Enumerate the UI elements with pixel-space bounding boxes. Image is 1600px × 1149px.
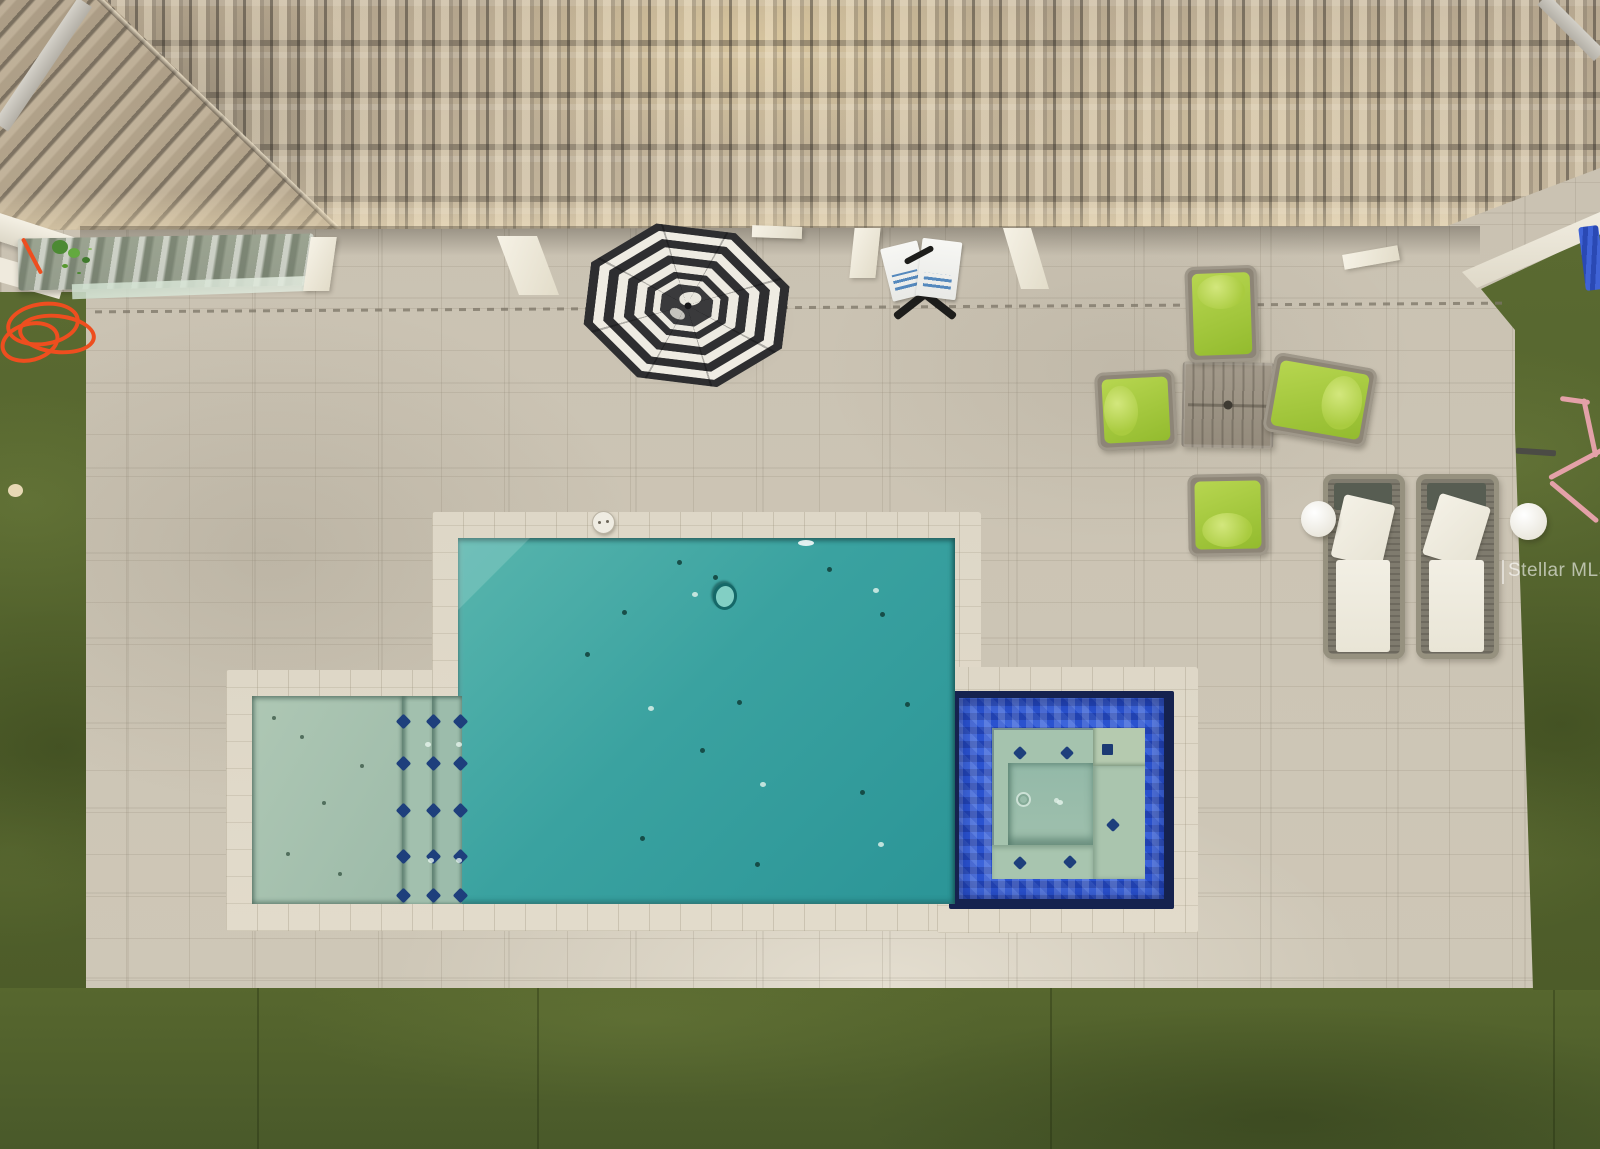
- striped-patio-umbrella: [577, 221, 794, 399]
- waterline-reflection: [798, 540, 814, 546]
- artificial-turf-left: [0, 292, 86, 992]
- turf-seam: [1050, 988, 1052, 1149]
- ledge-specks: [300, 735, 304, 739]
- light-dots: [425, 742, 431, 747]
- lounge-seat-cushion: [1336, 560, 1390, 652]
- orange-garden-hose-coil: [0, 240, 130, 370]
- stellar-mls-watermark: Stellar MLS: [1508, 560, 1600, 582]
- hose-fitting: [8, 484, 23, 497]
- dark-specks: [585, 652, 590, 657]
- lounge-seat-cushion: [1429, 560, 1484, 652]
- dark-specks: [880, 612, 885, 617]
- dark-specks: [860, 790, 865, 795]
- umbrella-seams: [578, 216, 795, 394]
- ledge-specks: [360, 764, 364, 768]
- lanai-beam: [752, 225, 802, 239]
- chaise-lounge: [1416, 474, 1499, 659]
- spa-squares: [1102, 744, 1113, 755]
- tanning-ledge: [252, 696, 402, 904]
- dark-specks: [905, 702, 910, 707]
- turf-seam: [537, 988, 539, 1149]
- folding-table-with-magazines: [885, 238, 965, 310]
- dining-chair-north: [1184, 265, 1259, 363]
- spa-entry-step: [1093, 728, 1145, 766]
- light-dots: [456, 858, 462, 863]
- dark-specks: [737, 700, 742, 705]
- artificial-turf-bottom: [0, 988, 1600, 1149]
- roof-valley-gutter-right: [1537, 0, 1600, 61]
- light-dots: [428, 858, 434, 863]
- lanai-post: [849, 228, 880, 278]
- light-dots: [760, 782, 766, 787]
- watermark-divider: [1502, 560, 1504, 584]
- dining-chair-west: [1094, 369, 1178, 451]
- spa-bench: [992, 845, 1093, 879]
- swimming-pool: [458, 538, 955, 904]
- dark-specks: [827, 567, 832, 572]
- ledge-specks: [322, 801, 326, 805]
- dark-specks: [713, 575, 718, 580]
- light-dots: [692, 592, 698, 597]
- ledge-specks: [338, 872, 342, 876]
- light-dots: [1057, 800, 1063, 805]
- dark-specks: [755, 862, 760, 867]
- light-dots: [456, 742, 462, 747]
- chaise-lounge: [1323, 474, 1405, 659]
- dark-specks: [700, 748, 705, 753]
- spa-bench: [1093, 766, 1145, 879]
- aerial-backyard-photo: Stellar MLS: [0, 0, 1600, 1149]
- ledge-specks: [286, 852, 290, 856]
- light-dots: [878, 842, 884, 847]
- magazine: [916, 238, 963, 300]
- dining-chair-south: [1187, 473, 1268, 556]
- patio-dining-table: [1181, 361, 1274, 449]
- round-side-table: [1301, 501, 1336, 537]
- ledge-specks: [272, 716, 276, 720]
- pool-step: [402, 696, 432, 904]
- dark-specks: [677, 560, 682, 565]
- round-side-table: [1510, 503, 1547, 540]
- turf-seam: [257, 988, 259, 1149]
- roof-eave-highlight: [0, 192, 1600, 230]
- spa-drain: [1016, 792, 1031, 807]
- light-dots: [648, 706, 654, 711]
- hose-tail: [21, 237, 43, 274]
- dark-specks: [640, 836, 645, 841]
- tile-roof: [0, 0, 1600, 232]
- light-dots: [873, 588, 879, 593]
- dark-specks: [622, 610, 627, 615]
- turf-seam: [1553, 988, 1555, 1149]
- umbrella-hole: [1223, 400, 1232, 409]
- skimmer-lid: [592, 511, 615, 534]
